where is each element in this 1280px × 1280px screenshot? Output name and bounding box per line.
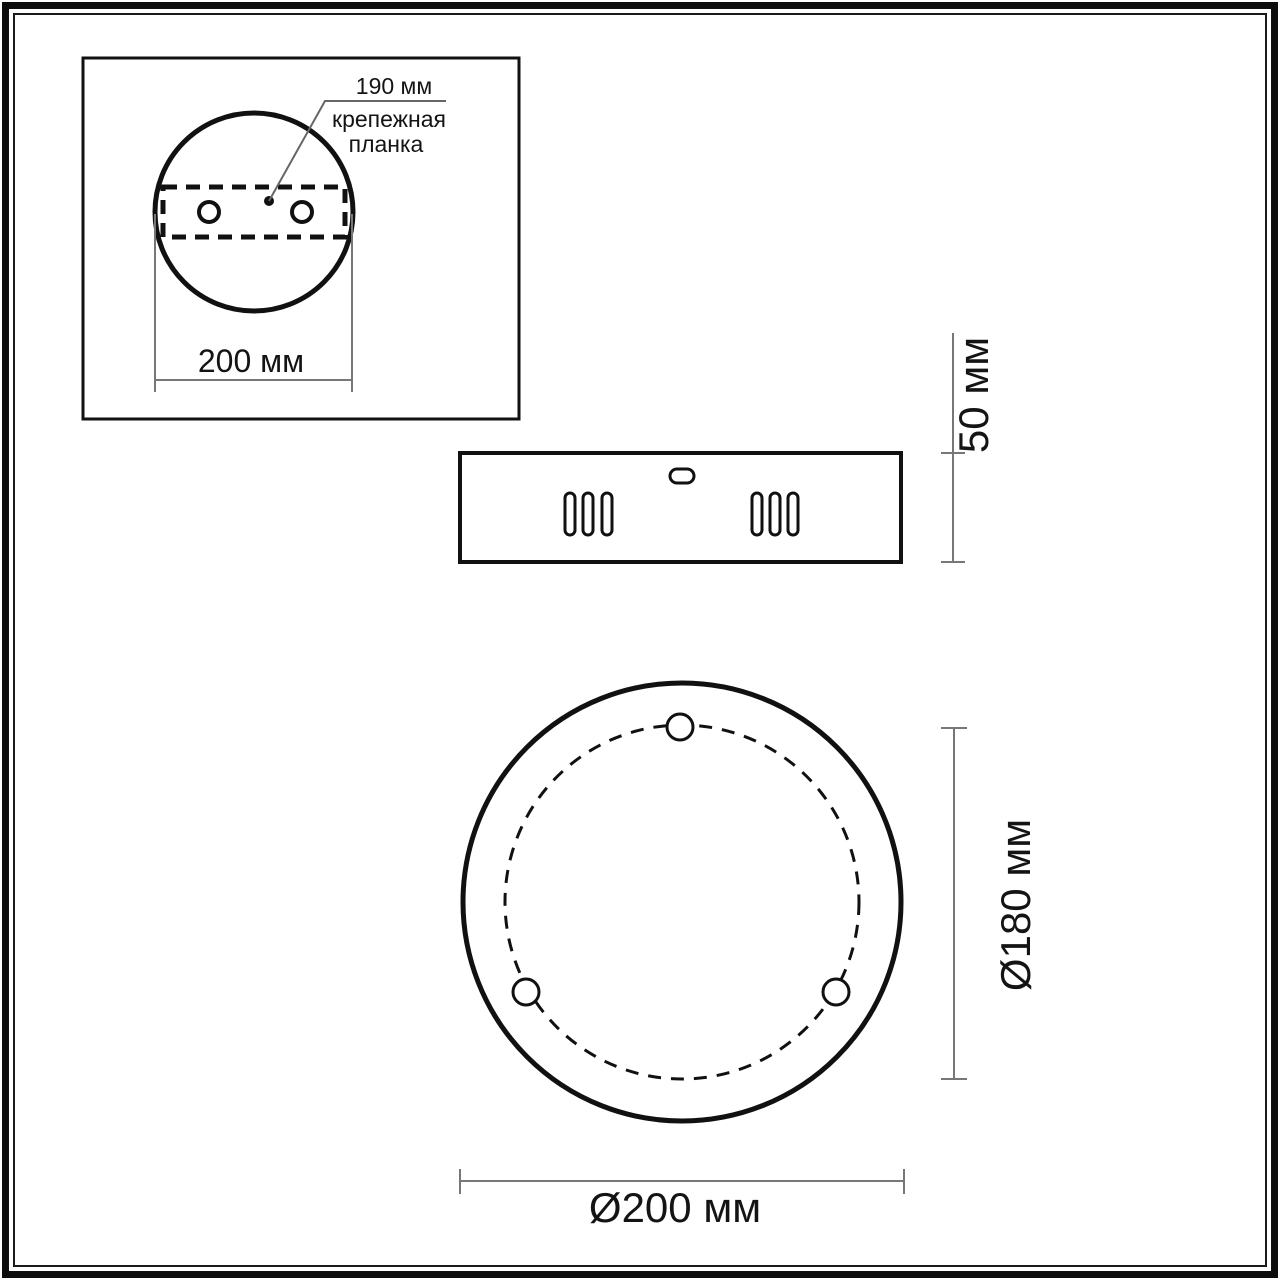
bracket-callout-line2: планка — [349, 131, 424, 157]
suspension-hole-bottom-right — [823, 979, 849, 1005]
bracket-callout-line1: крепежная — [332, 106, 446, 132]
technical-drawing-page: 190 мм крепежная планка 200 мм — [0, 0, 1280, 1280]
front-view: Ø180 мм Ø200 мм — [460, 683, 1039, 1231]
inset-detail-view: 190 мм крепежная планка 200 мм — [83, 58, 519, 419]
outer-diameter-dimension-label: Ø200 мм — [589, 1184, 761, 1231]
suspension-hole-bottom-left — [513, 979, 539, 1005]
bracket-spacing-label: 190 мм — [356, 73, 432, 99]
side-view: 50 мм — [460, 333, 997, 563]
plate-outer-circle — [463, 683, 901, 1121]
mounting-plate-drawing: 190 мм крепежная планка 200 мм — [0, 0, 1280, 1280]
inset-width-dimension-label: 200 мм — [198, 343, 304, 379]
side-height-dimension-label: 50 мм — [950, 337, 997, 453]
inner-diameter-dimension-label: Ø180 мм — [992, 819, 1039, 991]
suspension-hole-top — [667, 714, 693, 740]
